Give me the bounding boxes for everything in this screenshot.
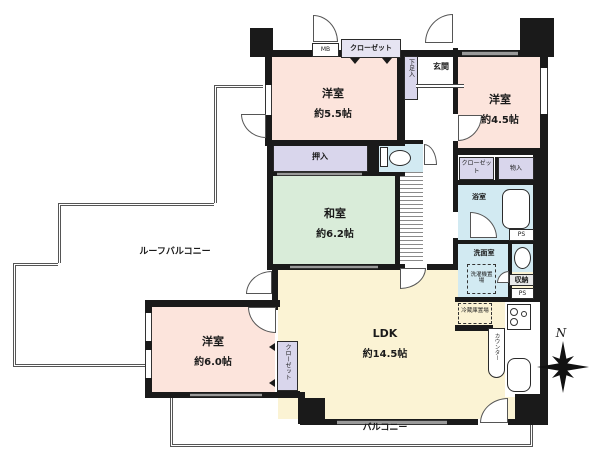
label-ldk: LDK 約14.5帖 bbox=[330, 322, 440, 362]
door-arc-toilet bbox=[424, 144, 437, 165]
counter-label: カウンター bbox=[493, 333, 501, 361]
room-size: 約4.5帖 bbox=[481, 115, 519, 126]
sliding-window bbox=[190, 393, 262, 397]
door-arc-meter-box bbox=[313, 15, 338, 42]
closet-top: クローゼット bbox=[341, 39, 401, 58]
room-size: 約5.5帖 bbox=[314, 109, 352, 120]
wall bbox=[533, 148, 541, 300]
wall bbox=[395, 172, 400, 270]
wall bbox=[267, 140, 273, 270]
storage-east: 物入 bbox=[498, 157, 534, 180]
label-roof-balcony: ルーフバルコニー bbox=[110, 247, 240, 258]
pipe-space-upper: PS bbox=[509, 229, 534, 241]
wall bbox=[427, 264, 458, 270]
wall bbox=[277, 391, 300, 398]
roof-balcony-outline bbox=[13, 263, 58, 367]
floor-plan: MB クローゼット 下足入 クローゼット 物入 クローゼット 収納 PS PS … bbox=[0, 0, 600, 462]
closet-door-mark bbox=[269, 343, 275, 351]
wall-pillar bbox=[298, 398, 325, 424]
laundry-space: 洗濯機置場 bbox=[467, 264, 496, 294]
shoe-box: 下足入 bbox=[404, 56, 418, 100]
sliding-door bbox=[277, 172, 362, 176]
stove-burner bbox=[521, 311, 527, 317]
label-futon-closet: 押入 bbox=[300, 152, 340, 162]
meter-box: MB bbox=[312, 43, 339, 57]
roof-balcony-outline bbox=[214, 85, 263, 203]
corridor-flooring bbox=[400, 172, 423, 264]
wash-basin bbox=[514, 247, 531, 269]
kitchen-sink bbox=[507, 358, 531, 392]
label-bathroom: 浴室 bbox=[463, 193, 495, 202]
sliding-window bbox=[462, 51, 518, 56]
compass-north-label: N bbox=[552, 326, 570, 341]
closet-east: クローゼット bbox=[459, 157, 494, 180]
wall bbox=[374, 140, 379, 172]
window-marker bbox=[145, 350, 152, 378]
toilet-bowl bbox=[389, 150, 411, 166]
label-entrance: 玄関 bbox=[421, 62, 461, 72]
sliding-door bbox=[290, 265, 378, 269]
room-size: 約6.0帖 bbox=[194, 357, 232, 368]
window-marker bbox=[265, 85, 272, 115]
label-east-bedroom: 洋室 約4.5帖 bbox=[462, 88, 538, 128]
pipe-space-lower: PS bbox=[511, 288, 534, 299]
bathtub bbox=[502, 189, 530, 229]
room-name: 和室 bbox=[324, 207, 346, 220]
closet-door-mark bbox=[382, 58, 392, 64]
kitchen-counter: カウンター bbox=[488, 328, 505, 378]
label-west-bedroom-top: 洋室 約5.5帖 bbox=[288, 82, 378, 122]
room-name: 洋室 bbox=[489, 93, 511, 106]
shoe-box-label: 下足入 bbox=[407, 59, 416, 77]
label-tatami-room: 和室 約6.2帖 bbox=[290, 202, 380, 242]
stove-burner bbox=[510, 318, 518, 326]
closet-door-mark bbox=[269, 379, 275, 387]
compass-rose-icon bbox=[536, 340, 590, 394]
wall bbox=[453, 48, 458, 114]
stove-burner bbox=[510, 308, 518, 316]
storage-small: 収納 bbox=[509, 274, 534, 286]
wall-pillar bbox=[515, 394, 548, 425]
closet-south: クローゼット bbox=[277, 341, 298, 391]
room-size: 約6.2帖 bbox=[316, 229, 354, 240]
window-marker bbox=[540, 68, 548, 114]
room-name: 洋室 bbox=[322, 87, 344, 100]
closet-door-mark bbox=[510, 149, 520, 155]
wall-pillar bbox=[520, 18, 554, 57]
label-balcony: バルコニー bbox=[340, 423, 430, 434]
room-size: 約14.5帖 bbox=[363, 349, 408, 360]
wall bbox=[265, 140, 405, 146]
entrance-step bbox=[416, 84, 464, 88]
door-arc-ldk-roof-balcony bbox=[246, 271, 272, 294]
wall bbox=[405, 140, 423, 144]
door-arc-entrance bbox=[425, 14, 453, 43]
roof-balcony-outline bbox=[58, 263, 148, 367]
toilet-tank bbox=[380, 147, 388, 167]
window-marker bbox=[145, 313, 152, 341]
fridge-space: 冷蔵庫置場 bbox=[458, 303, 492, 324]
closet-door-mark bbox=[350, 58, 360, 64]
label-washroom: 洗面室 bbox=[466, 249, 502, 258]
room-name: LDK bbox=[373, 327, 398, 340]
room-name: 洋室 bbox=[202, 335, 224, 348]
closet-door-mark bbox=[463, 149, 473, 155]
wall bbox=[145, 300, 280, 307]
label-south-bedroom: 洋室 約6.0帖 bbox=[168, 330, 258, 370]
closet-south-label: クローゼット bbox=[283, 344, 292, 380]
